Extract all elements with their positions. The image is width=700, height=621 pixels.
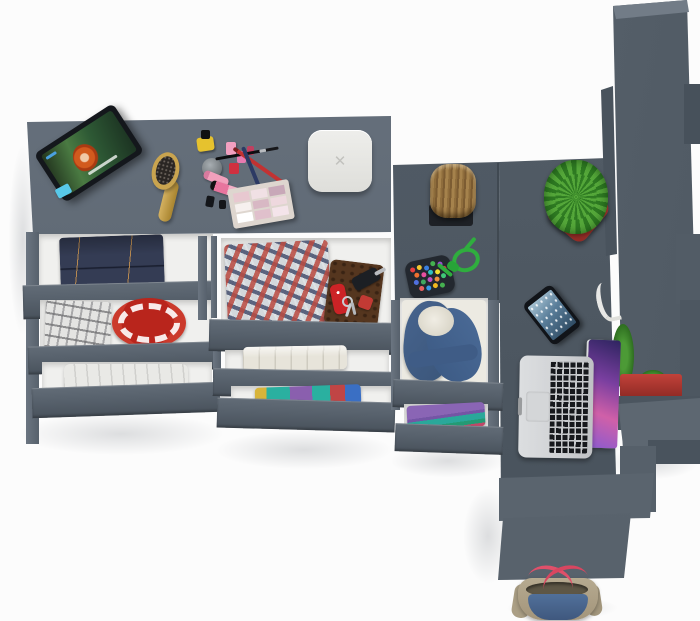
tree-stump-stool — [430, 164, 476, 218]
drawer-front — [217, 398, 396, 433]
key — [350, 302, 356, 315]
plate-rim-pattern — [118, 303, 180, 343]
pan — [252, 198, 269, 209]
pan — [272, 206, 289, 217]
divider-post — [211, 236, 217, 318]
pan — [268, 185, 285, 196]
white-scale: ✕ — [308, 130, 372, 192]
floor-shadow — [212, 430, 396, 470]
room-top-view: ✕ — [0, 0, 700, 621]
nail-polish-red — [229, 163, 239, 174]
scale-x-mark: ✕ — [334, 154, 347, 169]
pan — [270, 195, 287, 206]
wardrobe-attachment — [684, 84, 700, 144]
pan — [254, 209, 271, 220]
hoodie-lining — [418, 306, 454, 336]
nail-polish-cap — [201, 130, 210, 139]
red-plate — [112, 298, 186, 348]
laptop-keyboard — [549, 361, 589, 454]
hairbrush-bristles — [153, 154, 178, 187]
pan — [235, 201, 252, 212]
desk-seam — [497, 163, 499, 308]
wardrobe-attachment — [676, 234, 700, 304]
cream-towel — [243, 345, 347, 371]
mascara-bottle — [219, 200, 226, 209]
pan — [233, 191, 250, 202]
drawer-front — [395, 423, 504, 455]
beads — [410, 267, 416, 273]
palette-pans — [233, 185, 289, 224]
player-bar — [45, 151, 57, 160]
red-blue-plaid-shirt — [224, 239, 332, 330]
pan — [251, 188, 268, 199]
second-red-planter — [620, 374, 682, 398]
laptop-trackpad — [526, 391, 551, 421]
laptop-body — [518, 355, 594, 458]
floor-shadow — [14, 412, 228, 456]
divider-post — [198, 236, 207, 320]
laptop-notch — [518, 397, 522, 415]
movie-character — [67, 139, 105, 178]
pan — [236, 212, 253, 223]
